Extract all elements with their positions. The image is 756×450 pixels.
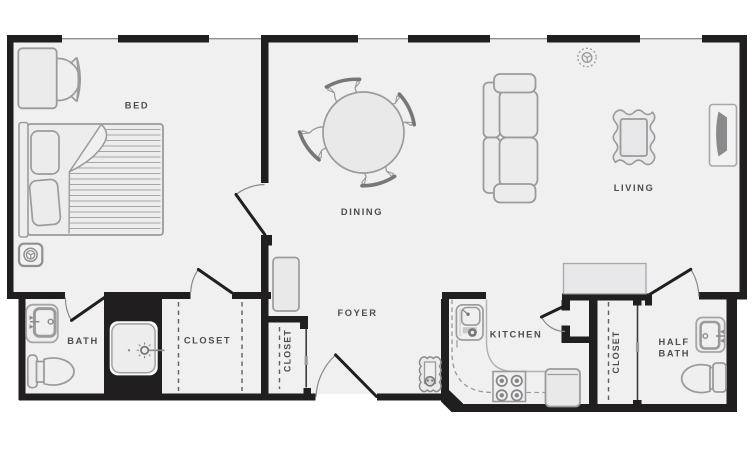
- svg-text:BATH: BATH: [659, 349, 691, 359]
- svg-text:HALF: HALF: [659, 337, 690, 347]
- svg-text:BATH: BATH: [67, 336, 99, 346]
- svg-text:FOYER: FOYER: [337, 308, 377, 318]
- svg-text:BED: BED: [125, 101, 149, 111]
- svg-text:KITCHEN: KITCHEN: [490, 329, 543, 339]
- svg-text:LIVING: LIVING: [614, 183, 655, 193]
- svg-text:CLOSET: CLOSET: [611, 331, 621, 374]
- svg-text:CLOSET: CLOSET: [184, 336, 231, 346]
- svg-text:DINING: DINING: [341, 207, 383, 217]
- svg-text:CLOSET: CLOSET: [283, 329, 293, 372]
